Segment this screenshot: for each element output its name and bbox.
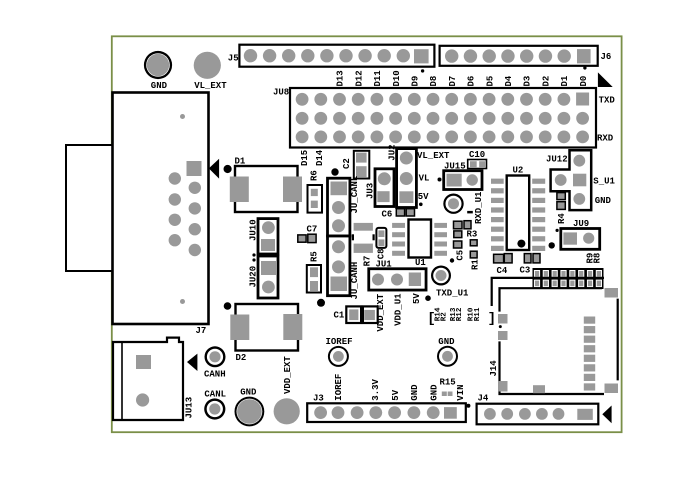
svg-text:GND: GND [438,337,455,347]
svg-text:VIN: VIN [456,384,466,400]
svg-text:JU_CANL: JU_CANL [350,176,360,214]
svg-text:J14: J14 [489,360,499,377]
svg-text:5V: 5V [412,293,422,304]
svg-text:GND: GND [429,384,439,401]
svg-text:VL: VL [419,174,430,184]
svg-text:JU8: JU8 [273,88,289,98]
svg-text:U2: U2 [513,166,524,176]
svg-text:R1: R1 [471,259,481,270]
svg-text:JU12: JU12 [546,155,568,165]
svg-text:R6: R6 [309,170,319,181]
svg-text:D0: D0 [579,76,589,87]
svg-text:JU3: JU3 [366,183,376,199]
svg-text:R8: R8 [592,253,602,264]
svg-text:R12: R12 [456,307,464,321]
svg-text:D7: D7 [448,76,458,87]
svg-text:R4: R4 [557,213,567,224]
svg-text:R2: R2 [441,312,449,322]
svg-text:C5: C5 [456,250,466,261]
svg-text:R5: R5 [310,251,320,262]
svg-text:CANL: CANL [204,389,226,399]
svg-text:D2: D2 [541,76,551,87]
svg-text:S_U1: S_U1 [593,177,615,187]
svg-text:5V: 5V [418,192,429,202]
svg-text:GND: GND [151,81,168,91]
svg-text:D2: D2 [236,353,247,363]
svg-text:C2: C2 [342,158,352,169]
svg-text:J6: J6 [601,52,612,62]
svg-text:JU2: JU2 [388,144,398,160]
svg-text:JU15: JU15 [444,162,466,172]
svg-text:JU20: JU20 [248,266,258,288]
svg-text:D9: D9 [411,76,421,87]
svg-text:D5: D5 [485,76,495,87]
svg-text:5V: 5V [391,389,401,400]
svg-text:JU_CANH: JU_CANH [350,262,360,300]
svg-text:VL_EXT: VL_EXT [194,81,227,91]
svg-text:D14: D14 [315,149,325,166]
svg-text:JU1: JU1 [376,260,393,270]
svg-text:J5: J5 [228,54,239,64]
svg-text:C4: C4 [497,266,508,276]
svg-text:GND: GND [240,388,257,398]
svg-text:D1: D1 [235,157,246,167]
svg-text:VDD_EXT: VDD_EXT [283,356,293,394]
svg-text:D11: D11 [373,70,383,87]
svg-text:C8: C8 [376,248,386,259]
svg-text:D12: D12 [354,70,364,86]
svg-text:C1: C1 [334,311,345,321]
svg-text:R3: R3 [467,229,478,239]
svg-text:D8: D8 [429,76,439,87]
svg-text:J3: J3 [313,394,324,404]
svg-text:JU9: JU9 [573,219,589,229]
svg-text:RXD: RXD [597,134,614,144]
svg-text:GND: GND [410,384,420,401]
svg-text:3.3V: 3.3V [371,378,381,400]
svg-text:IOREF: IOREF [334,374,344,401]
svg-text:R7: R7 [362,256,372,267]
svg-text:U1: U1 [415,258,426,268]
svg-text:]: ] [488,311,496,327]
svg-text:JU10: JU10 [248,219,258,241]
svg-text:RXD_U1: RXD_U1 [474,191,484,224]
svg-text:TXD_U1: TXD_U1 [436,289,469,299]
svg-text:D3: D3 [523,76,533,87]
svg-text:C7: C7 [307,225,318,235]
svg-text:GND: GND [595,196,612,206]
svg-text:J4: J4 [478,394,489,404]
svg-text:VL_EXT: VL_EXT [417,151,450,161]
svg-text:CANH: CANH [204,370,226,380]
svg-text:C6: C6 [382,210,393,220]
svg-text:JU13: JU13 [185,397,195,419]
svg-text:IOREF: IOREF [326,337,353,347]
svg-text:D13: D13 [336,70,346,86]
svg-text:R15: R15 [440,378,456,388]
svg-text:D4: D4 [504,75,514,86]
svg-text:C10: C10 [469,150,485,160]
svg-text:C3: C3 [520,266,531,276]
svg-text:D1: D1 [560,75,570,86]
svg-text:TXD: TXD [599,96,616,106]
svg-text:D10: D10 [392,70,402,86]
svg-text:VDD_U1: VDD_U1 [393,293,403,326]
svg-text:J7: J7 [196,326,207,336]
svg-text:D6: D6 [467,76,477,87]
svg-text:D15: D15 [300,150,310,166]
svg-text:R11: R11 [474,307,482,321]
